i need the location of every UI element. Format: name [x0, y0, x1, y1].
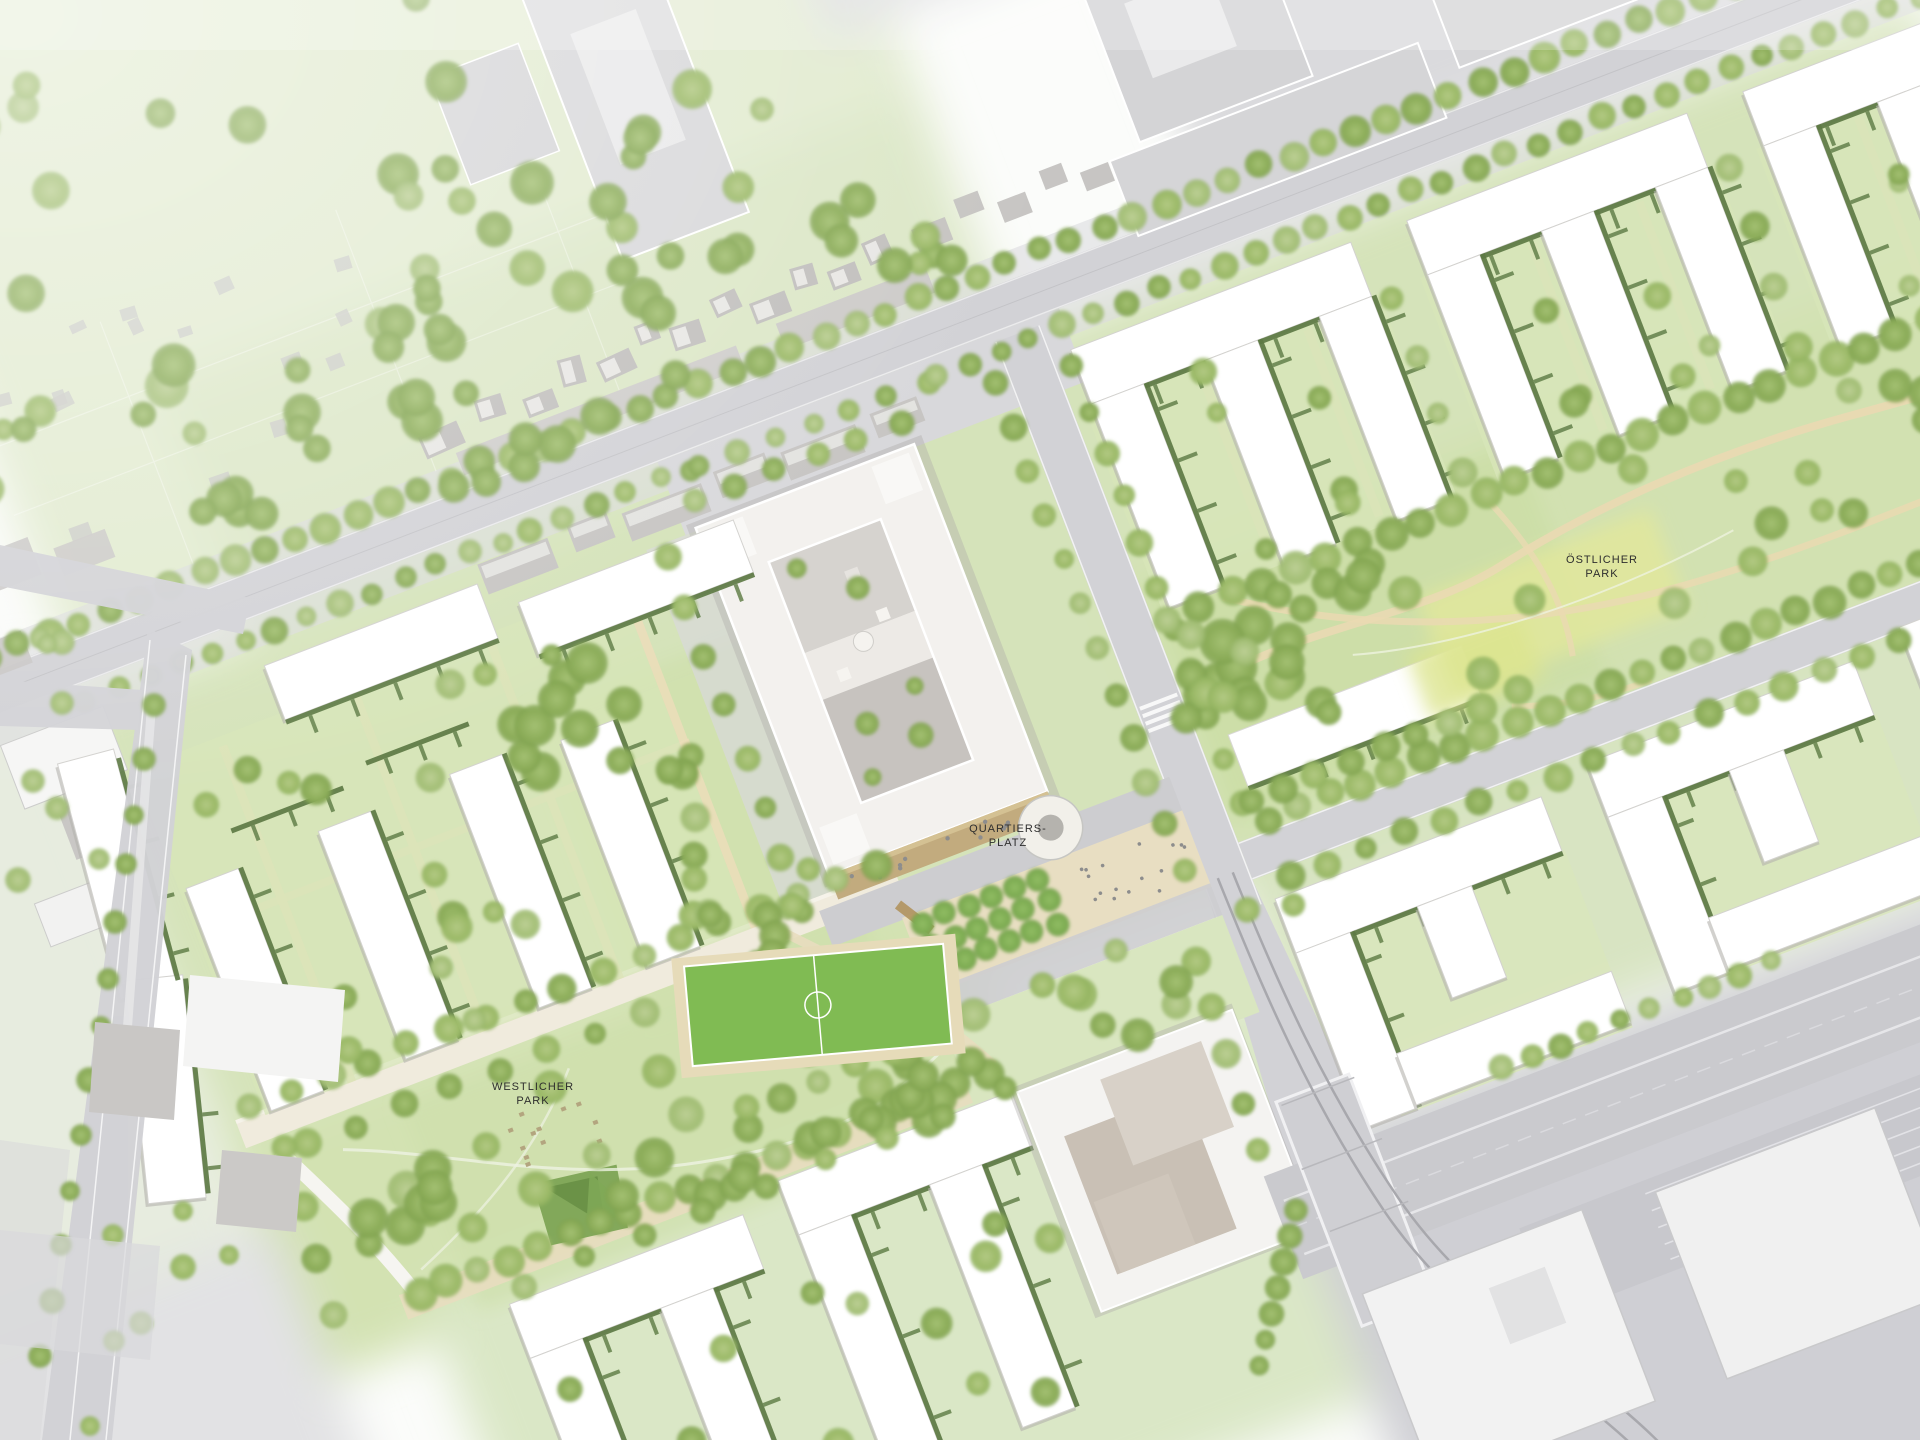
- svg-text:PARK: PARK: [516, 1095, 549, 1107]
- svg-text:PLATZ: PLATZ: [989, 837, 1027, 849]
- svg-text:ÖSTLICHER: ÖSTLICHER: [1566, 554, 1638, 566]
- svg-text:WESTLICHER: WESTLICHER: [492, 1081, 574, 1093]
- svg-text:QUARTIERS-: QUARTIERS-: [969, 823, 1047, 835]
- svg-text:PARK: PARK: [1585, 568, 1618, 580]
